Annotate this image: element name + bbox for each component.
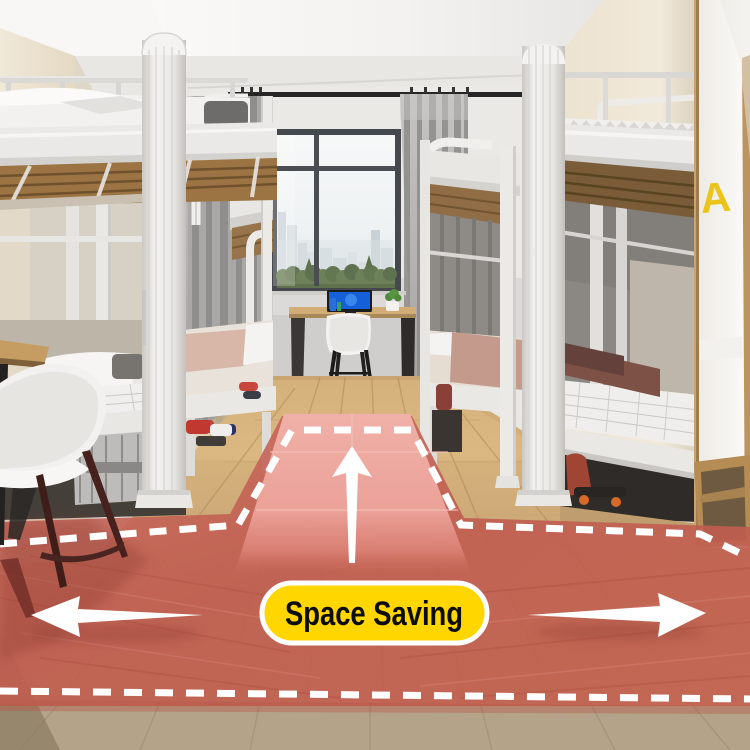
svg-text:Space Saving: Space Saving [285, 595, 463, 633]
svg-text:A: A [698, 173, 732, 222]
